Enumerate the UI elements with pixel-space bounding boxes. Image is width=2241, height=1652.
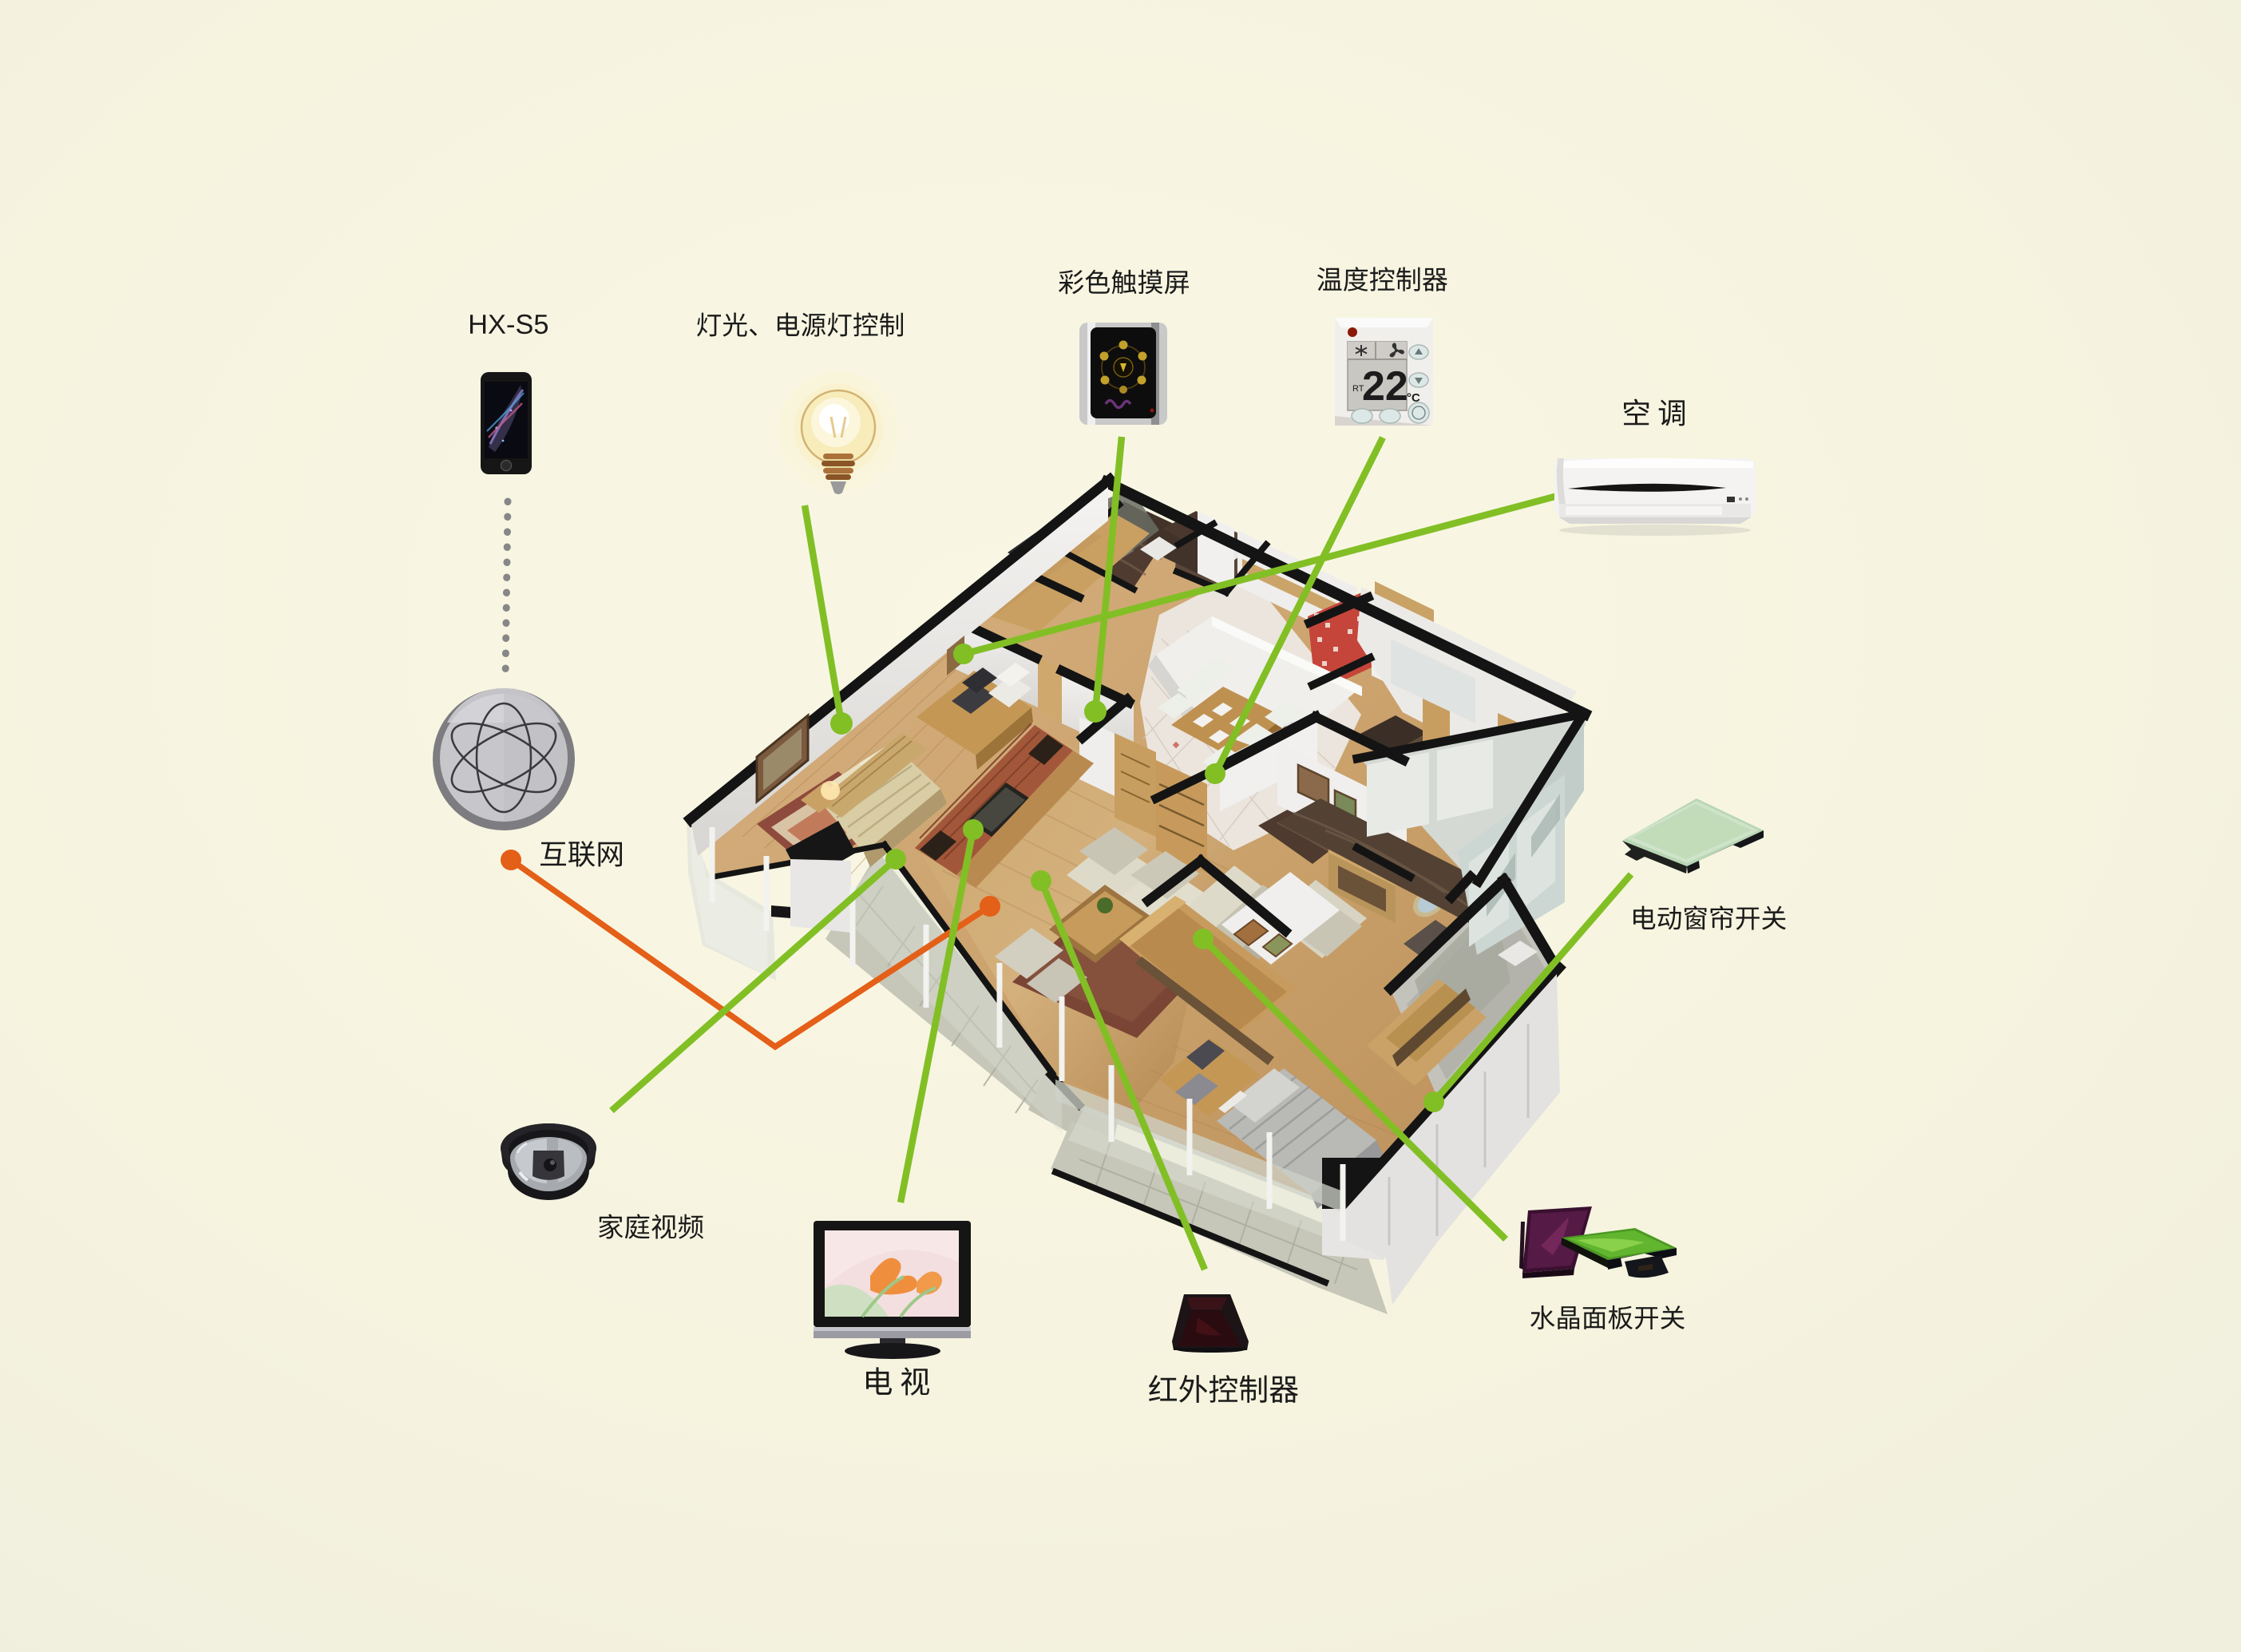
svg-text:22: 22	[1362, 363, 1408, 410]
